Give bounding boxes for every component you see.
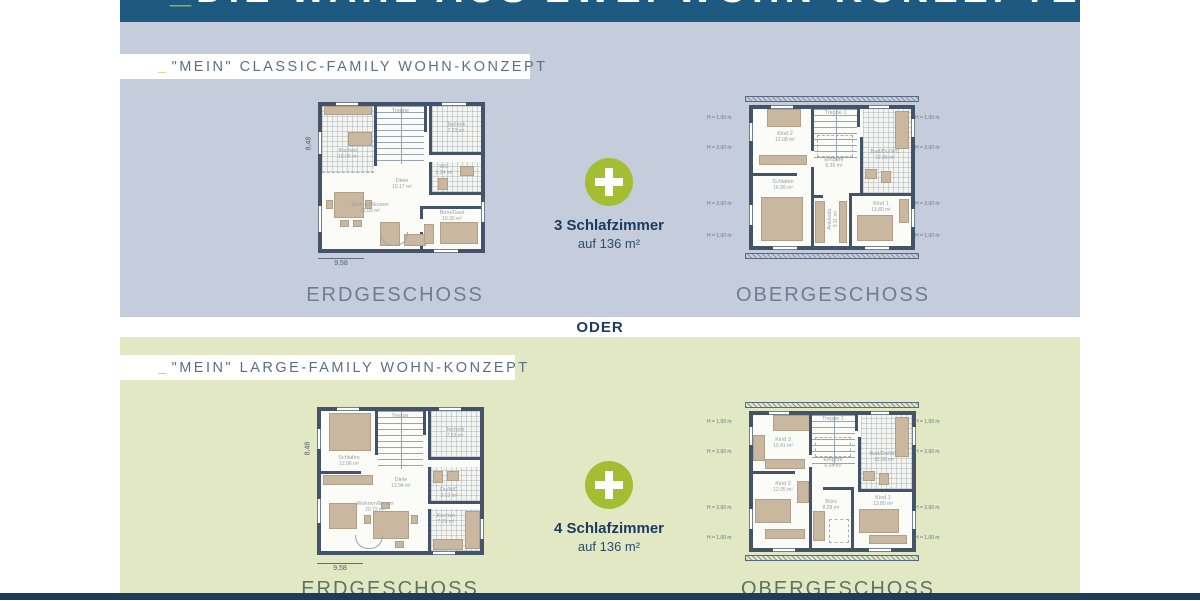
window — [871, 411, 889, 415]
room-label-diele: Diele13.94 m² — [379, 477, 423, 489]
window — [911, 119, 915, 137]
toilet — [879, 473, 889, 485]
room-label-kind2: Kind 212.05 m² — [761, 481, 805, 493]
roof-hatch — [745, 402, 919, 408]
sideboard — [765, 529, 805, 539]
toilet — [433, 471, 443, 483]
room-label-kind3: Kind 310.41 m² — [761, 437, 805, 449]
bed — [767, 109, 801, 127]
kitchen-counter — [465, 511, 480, 549]
room-label-kind2: Kind 212.08 m² — [763, 131, 807, 143]
desk — [424, 224, 434, 244]
sideboard — [759, 155, 807, 165]
plus-block-large: 4 Schlafzimmer auf 136 m² — [529, 461, 689, 554]
room-label-schlafen: Schlafen12.06 m² — [327, 455, 371, 467]
height-dim: H = 1,00 m — [915, 535, 940, 541]
empore-void — [817, 135, 853, 157]
room-label-treppe: Treppe 1 — [815, 110, 856, 116]
floorplan-large-obergeschoss: Kind 310.41 m² Treppe 1 Bad/Du/WC12.06 m… — [749, 411, 916, 552]
window — [749, 427, 753, 445]
height-dim: H = 1,00 m — [915, 419, 940, 425]
roof-hatch — [745, 253, 919, 259]
bed — [773, 415, 811, 431]
footer-bar — [0, 593, 1200, 600]
room-label-empore: Empore6.94 m² — [811, 457, 855, 469]
kitchen-island — [348, 132, 372, 146]
room-label-kochen: Kochen7.29 m² — [429, 513, 463, 525]
room-label-treppe: Treppe 1 — [813, 416, 853, 422]
wardrobe — [815, 201, 825, 243]
title-text: DIE WAHL AUS ZWEI WOHN-KONZEPTEN — [196, 0, 1080, 11]
page-title: _DIE WAHL AUS ZWEI WOHN-KONZEPTEN — [170, 0, 1080, 12]
toilet — [881, 171, 891, 183]
bed — [857, 215, 893, 241]
chair — [395, 541, 404, 548]
double-bed — [329, 413, 371, 451]
oder-divider: ODER — [120, 317, 1080, 337]
height-dim: H = 2,00 m — [915, 449, 940, 455]
chair — [340, 220, 349, 227]
window — [911, 209, 915, 227]
badge-large-family: _"MEIN" LARGE-FAMILY WOHN-KONZEPT — [0, 355, 515, 380]
badge-classic-label: "MEIN" CLASSIC-FAMILY WOHN-KONZEPT — [172, 59, 548, 75]
window — [865, 246, 889, 250]
plus-icon — [585, 158, 633, 206]
room-label-kind1: Kind 113.80 m² — [859, 495, 907, 507]
window — [771, 105, 793, 109]
room-label-treppe: Treppe — [379, 413, 421, 419]
badge-underscore: _ — [158, 360, 169, 376]
height-dim: H = 1,00 m — [707, 419, 732, 425]
room-label-empore: Empore5.36 m² — [813, 157, 855, 169]
bed — [859, 509, 899, 533]
window — [434, 249, 458, 253]
sideboard — [323, 475, 373, 485]
window — [439, 407, 461, 411]
sink — [460, 166, 474, 176]
dimension-width: 9,58 — [318, 258, 364, 267]
window — [318, 206, 322, 232]
window — [749, 123, 753, 141]
bed — [755, 499, 791, 523]
height-dim: H = 2,00 m — [707, 505, 732, 511]
oder-label: ODER — [576, 319, 623, 336]
height-dim: H = 2,00 m — [915, 201, 940, 207]
height-dim: H = 1,00 m — [707, 233, 732, 239]
window — [749, 205, 753, 225]
height-dim: H = 2,00 m — [915, 145, 940, 151]
floorplan-classic-erdgeschoss: Kochen12.06 m² Treppe Technik7.23 m² Die… — [318, 102, 485, 253]
room-label-kochen: Kochen12.06 m² — [326, 148, 370, 160]
door-arc — [369, 535, 383, 549]
window — [869, 105, 889, 109]
double-bed — [761, 197, 803, 241]
height-dim: H = 2,00 m — [707, 201, 732, 207]
sink — [447, 471, 459, 481]
bedroom-count: 3 Schlafzimmer — [529, 217, 689, 234]
window — [769, 411, 789, 415]
badge-large-label: "MEIN" LARGE-FAMILY WOHN-KONZEPT — [172, 360, 530, 376]
empore-void — [815, 437, 851, 457]
window — [912, 511, 916, 529]
guest-bed — [440, 222, 478, 244]
area-text: auf 136 m² — [529, 539, 689, 554]
chair — [326, 200, 333, 209]
window — [912, 427, 916, 445]
window — [749, 509, 753, 529]
window — [773, 548, 795, 552]
sideboard — [869, 535, 907, 544]
chair — [364, 515, 371, 524]
toilet — [438, 178, 448, 190]
height-dim: H = 1,00 m — [915, 115, 940, 121]
room-label-duwc: Du/WC3.12 m² — [431, 487, 467, 499]
staircase — [377, 106, 424, 164]
room-label-bad: Bad/Du/WC12.06 m² — [861, 451, 907, 463]
floor-title-classic-obergeschoss: OBERGESCHOSS — [683, 284, 983, 307]
room-label-diele: Diele10.17 m² — [380, 178, 424, 190]
sideboard — [765, 459, 805, 469]
bedroom-count: 4 Schlafzimmer — [529, 520, 689, 537]
rug — [829, 519, 849, 543]
room-label-bad: Bad/Du/WC12.06 m² — [863, 149, 907, 161]
height-dim: H = 1,00 m — [707, 535, 732, 541]
wardrobe — [839, 201, 847, 243]
room-label-wohnen: Wohnen/Essen20.72 m² — [347, 501, 403, 513]
window — [442, 102, 466, 106]
room-label-buero: Büro8.28 m² — [811, 499, 851, 511]
height-dim: H = 1,00 m — [707, 115, 732, 121]
title-underscore: _ — [170, 0, 196, 11]
roof-hatch — [745, 96, 919, 102]
floorplan-large-erdgeschoss: Schlafen12.06 m² Treppe Technik7.23 m² D… — [317, 407, 484, 555]
window — [480, 519, 484, 539]
header-bar: _DIE WAHL AUS ZWEI WOHN-KONZEPTEN — [120, 0, 1080, 22]
window — [433, 551, 455, 555]
height-dim: H = 1,00 m — [915, 233, 940, 239]
dimension-width: 9,58 — [317, 563, 363, 572]
badge-classic-family: _"MEIN" CLASSIC-FAMILY WOHN-KONZEPT — [0, 54, 530, 79]
sink — [863, 471, 875, 481]
room-label-buero-gast: Büro/Gast10.30 m² — [430, 210, 474, 222]
window — [773, 246, 797, 250]
height-dim: H = 2,00 m — [707, 449, 732, 455]
dimension-height: 8,48 — [304, 442, 311, 456]
height-dim: H = 2,00 m — [707, 145, 732, 151]
height-dim: H = 2,00 m — [915, 505, 940, 511]
dimension-height: 8,48 — [305, 137, 312, 151]
room-label-treppe: Treppe — [379, 108, 422, 114]
room-label-ankleide: Ankleide5.11 m² — [827, 203, 839, 235]
window — [317, 499, 321, 523]
kitchen-counter — [433, 539, 463, 550]
room-label-technik: Technik7.23 m² — [433, 427, 477, 439]
room-label-technik: Technik7.23 m² — [434, 122, 478, 134]
floorplan-classic-obergeschoss: Kind 212.08 m² Treppe 1 Bad/Du/WC12.06 m… — [749, 105, 915, 250]
window — [317, 429, 321, 449]
window — [481, 202, 485, 222]
bathtub — [895, 111, 909, 149]
plus-icon — [585, 461, 633, 509]
chair — [353, 220, 362, 227]
plus-block-classic: 3 Schlafzimmer auf 136 m² — [529, 158, 689, 251]
badge-underscore: _ — [158, 59, 169, 75]
window — [318, 132, 322, 154]
door-arc — [355, 535, 369, 549]
window — [336, 102, 358, 106]
area-text: auf 136 m² — [529, 236, 689, 251]
room-label-wc: WC1.34 m² — [430, 164, 458, 176]
staircase — [378, 411, 423, 469]
room-label-kind1: Kind 113.80 m² — [859, 201, 903, 213]
chair — [411, 515, 418, 524]
sink — [865, 169, 877, 179]
floor-title-classic-erdgeschoss: ERDGESCHOSS — [245, 284, 545, 307]
room-label-schlafen: Schlafen16.99 m² — [761, 179, 805, 191]
kitchen-counter — [324, 106, 372, 115]
desk — [813, 511, 825, 541]
roof-hatch — [745, 555, 919, 561]
room-label-wohnen: Wohnen/Essen21.09 m² — [342, 202, 398, 214]
window — [869, 548, 891, 552]
window — [337, 407, 359, 411]
